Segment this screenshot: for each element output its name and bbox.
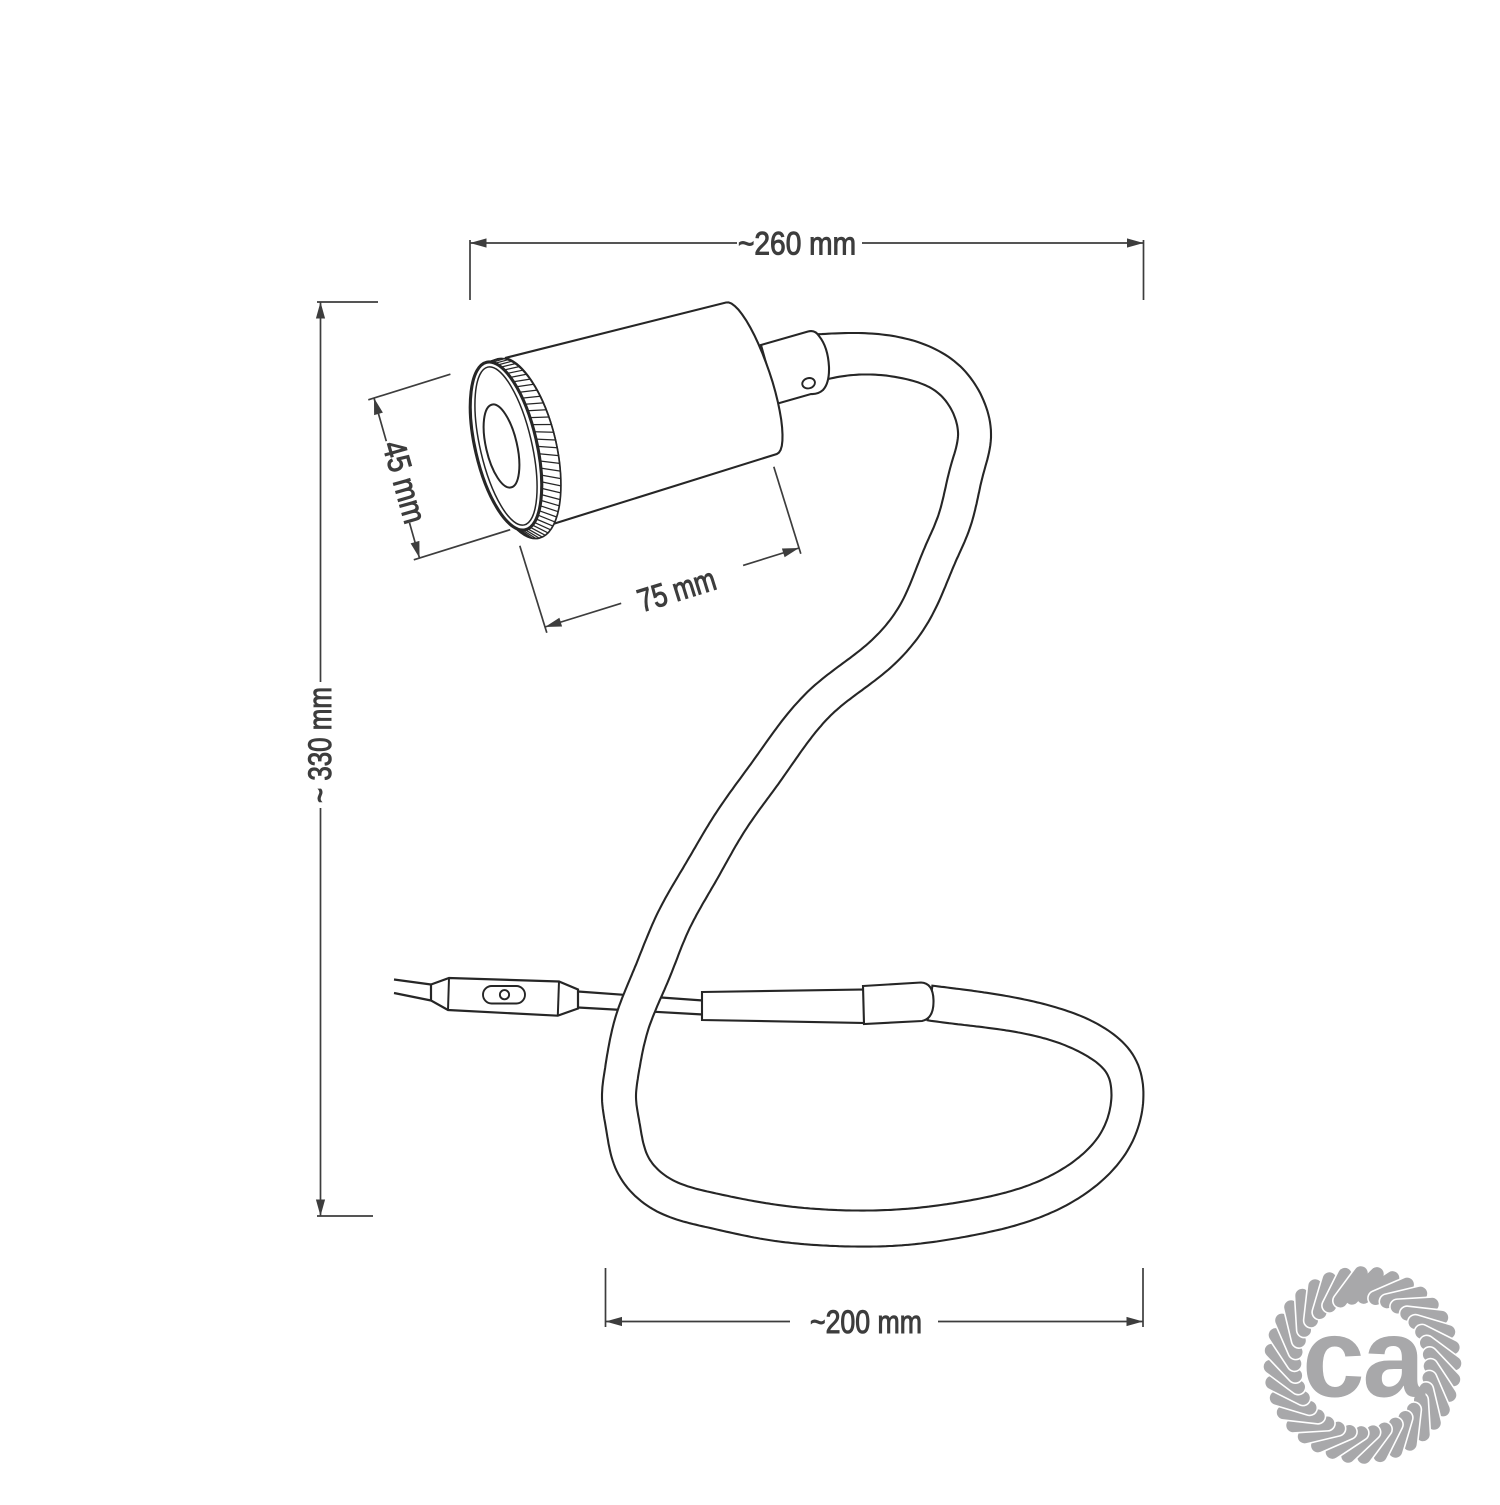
svg-text:~260 mm: ~260 mm xyxy=(738,226,856,262)
svg-text:~200 mm: ~200 mm xyxy=(810,1304,922,1340)
svg-text:~ 330 mm: ~ 330 mm xyxy=(302,687,338,803)
svg-text:ca: ca xyxy=(1302,1296,1425,1421)
